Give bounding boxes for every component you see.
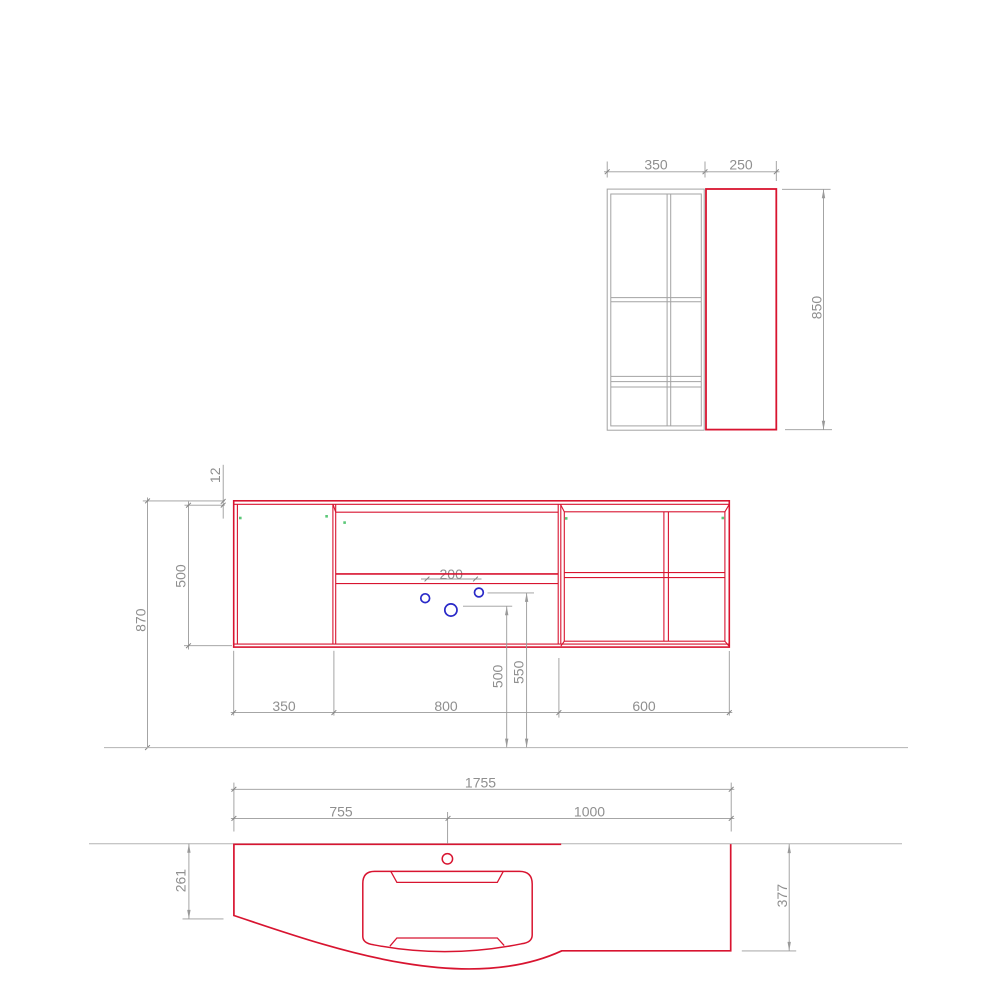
svg-text:500: 500 — [490, 665, 506, 689]
svg-text:12: 12 — [207, 467, 223, 483]
svg-text:350: 350 — [644, 156, 668, 172]
svg-text:250: 250 — [729, 156, 753, 172]
svg-text:600: 600 — [632, 698, 656, 714]
svg-text:550: 550 — [511, 660, 527, 684]
svg-text:870: 870 — [133, 608, 149, 632]
svg-text:377: 377 — [774, 884, 790, 908]
svg-text:1755: 1755 — [465, 774, 496, 790]
svg-text:800: 800 — [434, 698, 458, 714]
svg-text:850: 850 — [808, 296, 824, 320]
svg-text:500: 500 — [172, 564, 188, 588]
svg-text:350: 350 — [272, 698, 296, 714]
svg-text:1000: 1000 — [574, 803, 605, 819]
svg-text:755: 755 — [329, 803, 353, 819]
svg-text:261: 261 — [173, 869, 189, 893]
